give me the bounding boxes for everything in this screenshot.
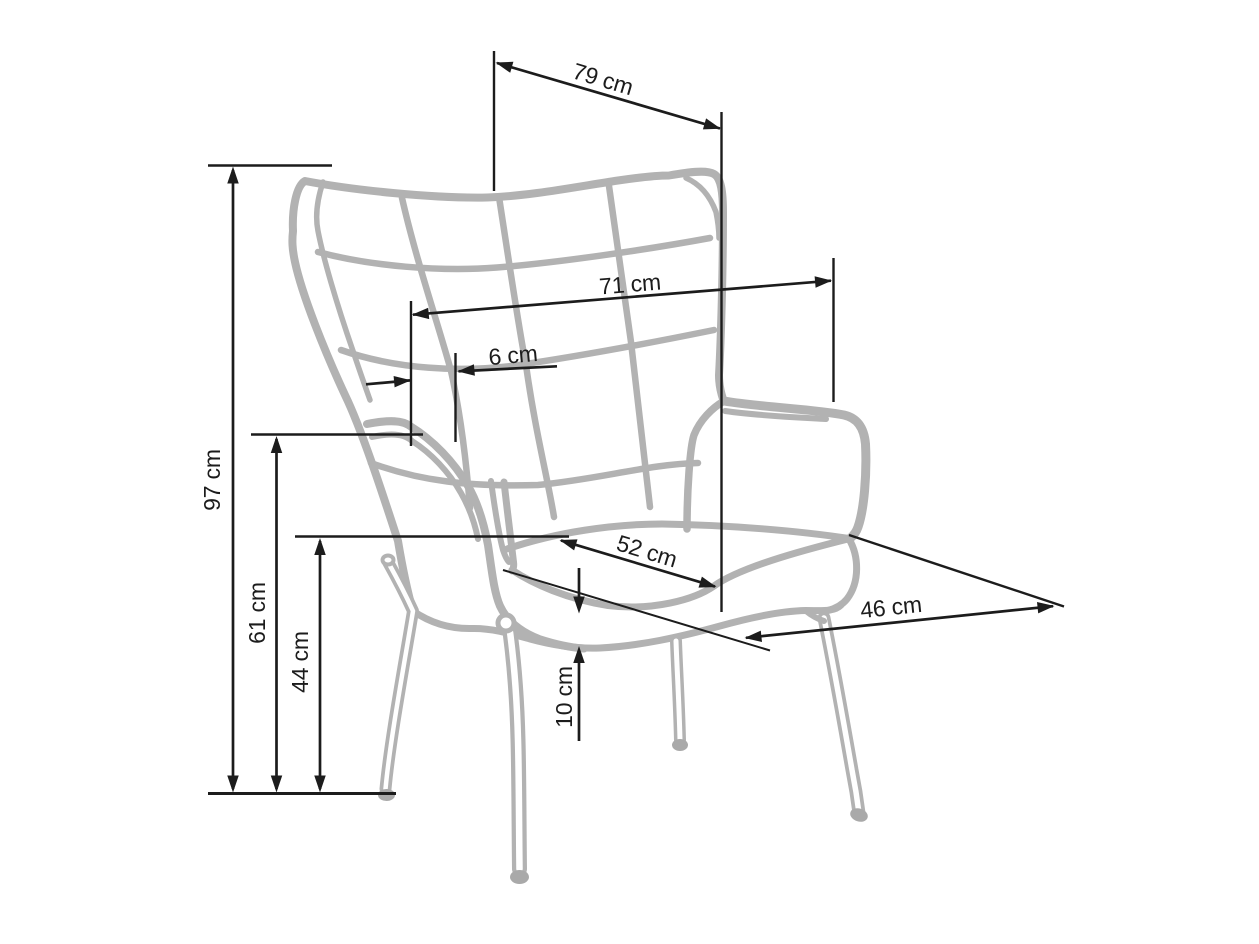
svg-text:44 cm: 44 cm	[287, 631, 313, 693]
svg-text:61 cm: 61 cm	[244, 582, 270, 644]
svg-text:6 cm: 6 cm	[487, 340, 538, 370]
svg-text:97 cm: 97 cm	[199, 449, 225, 511]
svg-text:71 cm: 71 cm	[598, 269, 662, 300]
svg-text:10 cm: 10 cm	[551, 666, 577, 728]
